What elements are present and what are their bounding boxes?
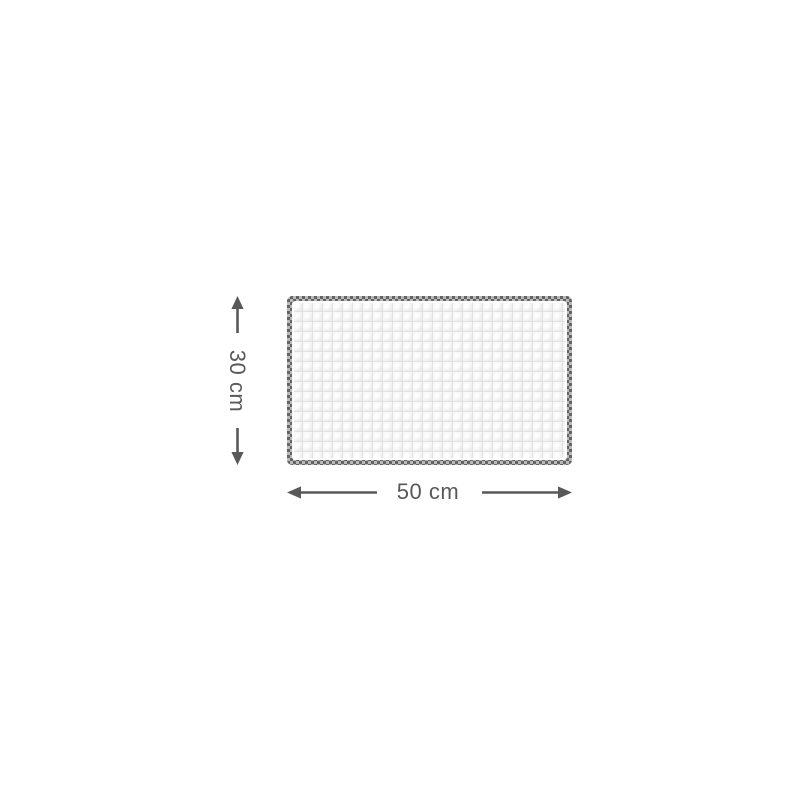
height-dimension-label: 30 cm <box>223 331 251 431</box>
arrow-left-icon <box>287 485 378 500</box>
waffle-texture <box>292 301 567 460</box>
arrow-down-icon <box>230 427 245 465</box>
arrow-up-icon <box>230 296 245 334</box>
fabric-swatch <box>287 296 572 465</box>
arrow-right-icon <box>481 485 572 500</box>
width-dimension-label: 50 cm <box>378 478 478 506</box>
dimension-diagram: 30 cm 50 cm <box>0 0 800 800</box>
